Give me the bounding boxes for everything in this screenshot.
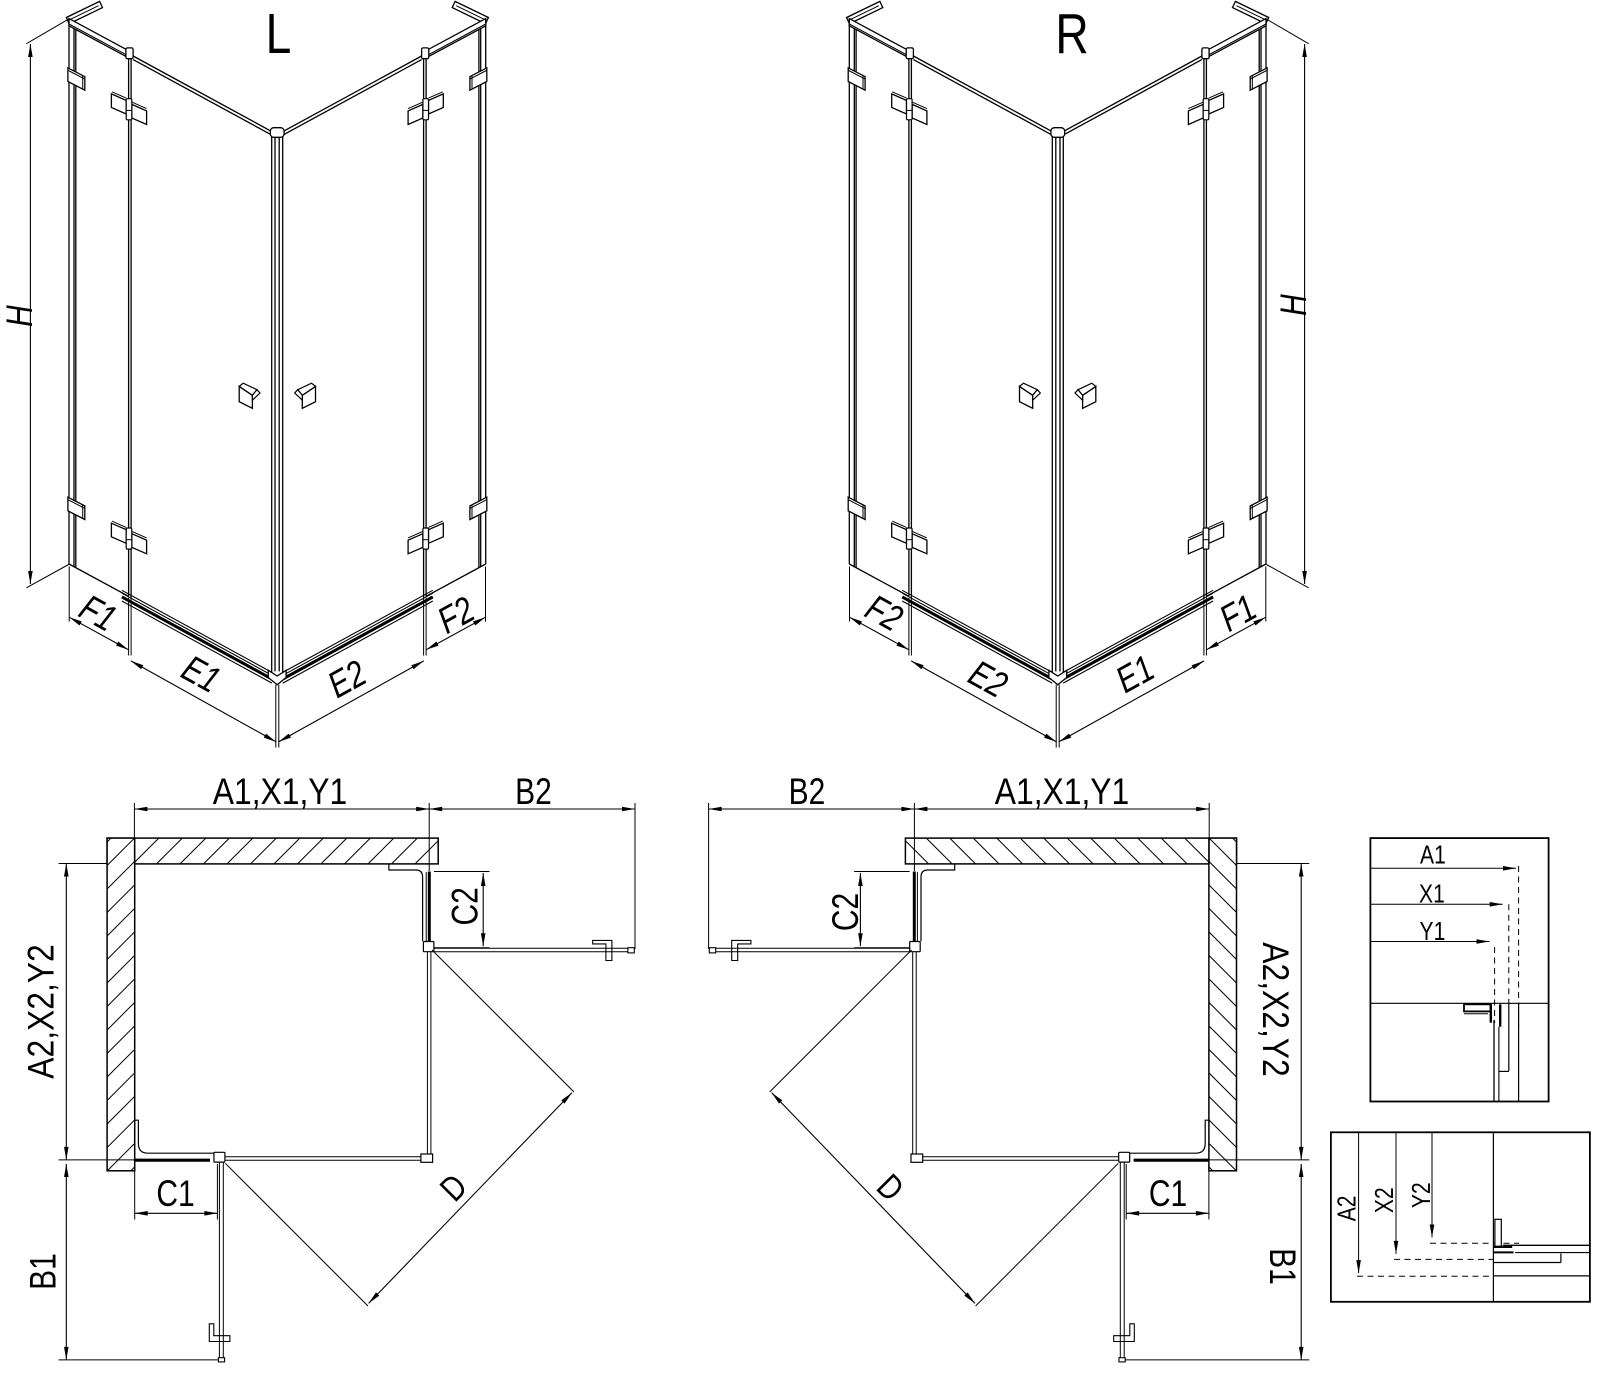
svg-text:B2: B2 xyxy=(789,772,826,813)
svg-text:Y1: Y1 xyxy=(1420,918,1446,947)
svg-text:C1: C1 xyxy=(1149,1174,1187,1215)
svg-text:A2: A2 xyxy=(1334,1196,1363,1222)
svg-text:A2,X2,Y2: A2,X2,Y2 xyxy=(1254,942,1295,1076)
svg-text:C1: C1 xyxy=(156,1174,194,1215)
svg-text:B1: B1 xyxy=(1261,1248,1302,1285)
svg-text:X2: X2 xyxy=(1371,1187,1400,1213)
svg-text:A2,X2,Y2: A2,X2,Y2 xyxy=(21,944,62,1078)
svg-text:A1,X1,Y1: A1,X1,Y1 xyxy=(995,772,1129,813)
svg-text:X1: X1 xyxy=(1419,881,1445,910)
svg-text:H: H xyxy=(1274,294,1315,316)
svg-text:H: H xyxy=(0,305,41,327)
svg-text:L: L xyxy=(266,1,292,65)
svg-text:C2: C2 xyxy=(826,893,867,931)
svg-text:A1,X1,Y1: A1,X1,Y1 xyxy=(213,772,347,813)
svg-text:B1: B1 xyxy=(24,1253,65,1290)
svg-text:B2: B2 xyxy=(515,772,552,813)
svg-text:R: R xyxy=(1055,1,1088,65)
svg-text:Y2: Y2 xyxy=(1408,1182,1437,1208)
svg-text:A1: A1 xyxy=(1420,842,1446,871)
svg-text:C2: C2 xyxy=(446,887,487,925)
